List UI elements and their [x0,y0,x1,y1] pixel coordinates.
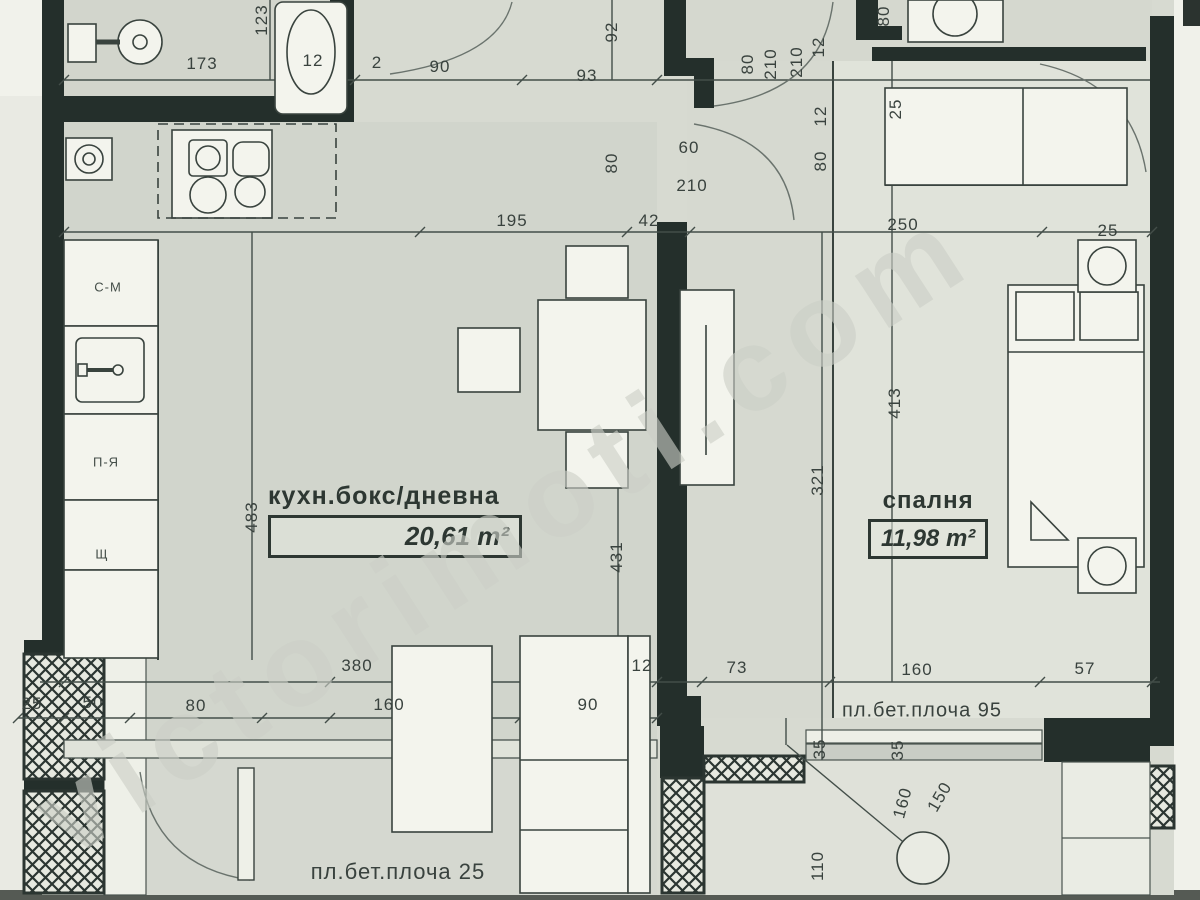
pillow [1016,292,1074,340]
chair [566,432,628,488]
kitchen-cabinet [64,414,158,500]
bathtub-icon [275,2,347,114]
pillow [1080,292,1138,340]
sofa-armrest [628,636,650,893]
sink-icon [118,20,162,64]
dining-table [538,300,646,430]
sofa-chaise [392,646,492,832]
tv-unit [680,290,734,485]
wardrobe [885,88,1127,185]
sofa [520,636,628,893]
terrace-elements [897,832,949,884]
chair [458,328,520,392]
column-icon [897,832,949,884]
kitchen-cabinet [64,240,158,326]
kitchen-cabinet [64,570,158,658]
kitchen-cabinet [64,500,158,570]
floorplan: кухн.бокс/дневна 20,61 m² спалня 11,98 m… [0,0,1200,900]
floorplan-drawing [0,0,1200,900]
chair [566,246,628,298]
